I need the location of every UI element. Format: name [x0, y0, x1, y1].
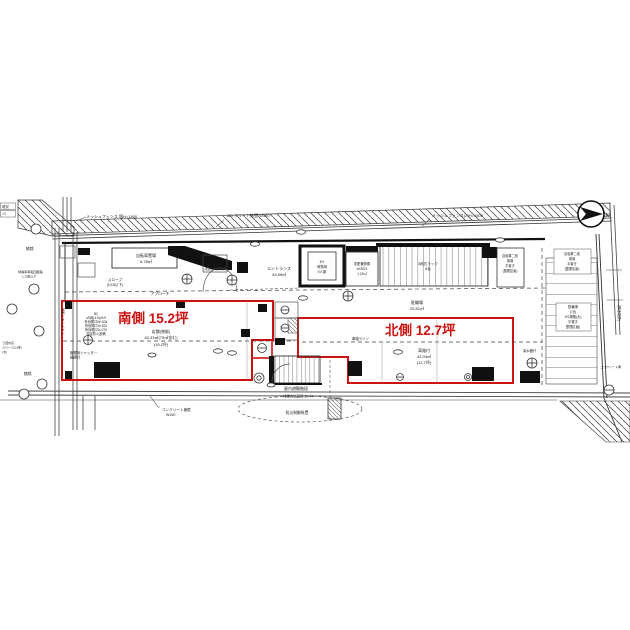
water-meter-label: 量水器付: [523, 348, 537, 353]
manhole-icon: [397, 374, 404, 381]
shutter-note: 管理用シャッター: [70, 350, 98, 355]
smoke-note: 排煙有効面積 35.44: [283, 394, 313, 399]
outdoor-bike-label: 置場: [507, 258, 514, 263]
ev-note: 荷物用: [317, 264, 327, 269]
parking7-label: JIS規格(大): [565, 314, 582, 319]
escape-stair-label: 屋内避難階段: [284, 385, 308, 391]
space-note: う回対応: [2, 340, 14, 345]
manhole-icon: [227, 275, 237, 285]
mesh-fence-right-label: メッシュフェンス(2)H=1800: [432, 213, 484, 218]
south-boundary-lines: [0, 391, 630, 400]
spec-line: 特定防火設備: [86, 331, 105, 336]
space-note: スペース(2t車): [2, 345, 22, 350]
wc-fixture-icon: [258, 344, 267, 353]
survey-point: [31, 224, 41, 234]
pillar: [94, 362, 120, 378]
manhole-icon: [604, 385, 614, 395]
slope-note: (1/15以下): [107, 283, 124, 287]
ev-label: EV: [320, 260, 325, 264]
parking7-label: (7台: [570, 309, 577, 314]
zone-south-use: 店舗(物販): [152, 328, 171, 334]
concrete-fence-right-label: コンクリート塀: [600, 364, 621, 369]
survey-point: [29, 284, 39, 294]
bike-parking-name: 駐輪場: [411, 299, 423, 305]
bicycle-room-name: 自転車置場: [136, 252, 156, 258]
bicycle-room-area: 6.78㎡: [140, 258, 152, 264]
outdoor-bike-label: 平置き: [505, 263, 515, 268]
approach-label: アプローチ: [151, 291, 170, 296]
storage-name: 宅配兼物置: [354, 261, 371, 266]
awning-box-label: (宅配)ボックス: [204, 266, 224, 271]
parking-note: 自転車二段: [564, 251, 581, 256]
parking-note: (整理区画): [565, 266, 580, 271]
zone-south-title: 南側 15.2坪: [118, 310, 189, 326]
building-north-wall: [62, 239, 545, 243]
zone-north-tsubo: (12.7坪): [417, 359, 432, 365]
survey-point: [37, 379, 47, 389]
bike-rack-band: [380, 246, 488, 286]
outdoor-bike-label: 自転車二段: [502, 253, 519, 258]
pipe-shaft: [288, 318, 298, 333]
ev-note: 9人乗: [318, 269, 327, 274]
mesh-fence-left-label: メッシュフェンス 塀H=1800: [86, 213, 138, 219]
text-labels: 南側 15.2坪 北側 12.7坪 店舗(物販) 63.33㎡(75㎡含む) (…: [2, 204, 622, 417]
manhole-icon: [465, 374, 472, 381]
manhole-icon: [254, 373, 264, 383]
road-surface-label: アスファルト舗装: [60, 307, 65, 335]
planting-label: 植栽: [24, 371, 32, 376]
wc-fixture-icon: [281, 324, 289, 332]
pillar: [472, 367, 494, 381]
escape-stair: [274, 356, 320, 383]
floor-plan-page: N 南側 15.2坪 北側 12.7坪 店舗(物販) 63.33㎡(75㎡含む)…: [0, 0, 630, 630]
space-note: 2台: [2, 349, 7, 354]
parking-note: 平置き: [567, 261, 577, 266]
entrance-name: エントランス: [267, 265, 291, 271]
zone-south-tsubo: (19.2坪): [154, 341, 169, 347]
zone-north-area: 42.04㎡: [417, 353, 431, 359]
outdoor-bike-label: (整理区画): [503, 268, 518, 273]
manhole-icon: [343, 291, 353, 301]
meter-icon: [527, 358, 537, 368]
rack-count: 5台: [425, 266, 431, 271]
survey-point: [19, 389, 29, 399]
southeast-corner-hatch: [560, 401, 630, 442]
bicycle-shed-room: [112, 248, 177, 268]
pillar: [348, 361, 362, 376]
disaster-control-box: [328, 398, 341, 419]
corner-tag: 現況: [2, 204, 9, 209]
parking-note: 置場: [569, 256, 576, 261]
slope-label: スロープ: [108, 277, 123, 282]
bottom-annotations: [150, 360, 362, 422]
concrete-wall-bottom-label: コンクリート擁壁: [162, 407, 191, 412]
parking7-label: 駐輪場: [568, 304, 579, 309]
manhole-icon: [84, 336, 93, 345]
drive-line-label: 車路ライン: [352, 336, 370, 341]
northwest-corner-hatch: [18, 200, 74, 236]
approach-dashed-line: [65, 288, 545, 292]
wc-fixture-icon: [281, 306, 289, 314]
corner-tag: +2: [2, 212, 6, 216]
parking7-label: 整理区画): [566, 324, 580, 329]
concrete-wall-bottom-size: W150: [166, 413, 175, 417]
zone-south-area: 63.33㎡(75㎡含む): [144, 334, 178, 340]
concrete-wall-top-label: コンクリート擁壁 W150: [226, 212, 270, 218]
survey-point: [34, 326, 44, 336]
planting-label: 植栽: [26, 246, 34, 251]
parking7-label: 平置き: [568, 319, 578, 324]
zone-north-title: 北側 12.7坪: [385, 322, 456, 338]
center-core: [241, 302, 322, 384]
turn-path-note: 特殊車両転回経路: [18, 269, 43, 274]
rack-label: 3段式ラック: [418, 261, 438, 266]
bike-parking-area: 25.81㎡: [410, 305, 424, 311]
neighbor-boundary-label: (隣地境界): [617, 305, 622, 321]
site-plan-drawing: N 南側 15.2坪 北側 12.7坪 店舗(物販) 63.33㎡(75㎡含む)…: [0, 0, 630, 630]
shutter-note: 袖扉付: [70, 355, 81, 360]
entrance-area: 33.89㎡: [272, 271, 286, 277]
storage-area: 1.26㎡: [357, 271, 367, 276]
north-arrow-label: N: [606, 213, 610, 219]
survey-point: [7, 304, 17, 314]
zone-north-use: 車路付: [418, 347, 430, 353]
manhole-icon: [182, 274, 192, 284]
turn-path-note: 1.7t車以下: [22, 274, 36, 279]
storage-name: W.BOX: [357, 267, 369, 271]
disaster-label: 防災制御装置: [286, 410, 309, 415]
